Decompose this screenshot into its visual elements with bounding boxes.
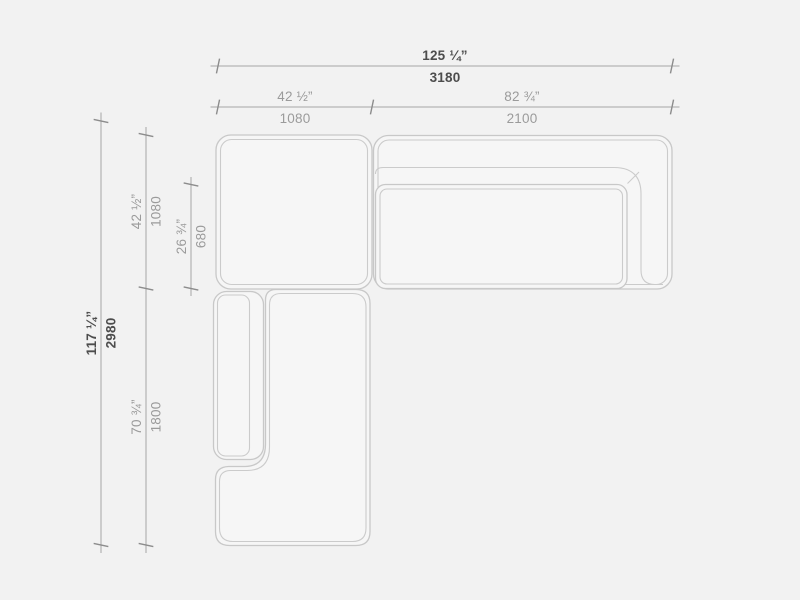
corner-module-width-inches-label: 42 ½” <box>277 89 313 104</box>
seat-depth-mm-label: 680 <box>194 225 209 248</box>
sofa-plan <box>214 135 673 546</box>
sofa-top-view-dimension-drawing: 125 ¼” 3180 42 ½” 1080 82 ¾” 2100 117 ¼”… <box>0 0 800 600</box>
chaise-module-depth-mm-label: 1800 <box>149 402 164 433</box>
seat-depth-inches-label: 26 ¾” <box>174 219 189 255</box>
corner-module-outline <box>216 135 372 289</box>
dimension-lines <box>94 59 680 553</box>
sofa-module-width-inches-label: 82 ¾” <box>504 89 540 104</box>
corner-module-depth-inches-label: 42 ½” <box>129 194 144 230</box>
dimension-drawing-page: 125 ¼” 3180 42 ½” 1080 82 ¾” 2100 117 ¼”… <box>0 0 800 600</box>
overall-depth-mm-label: 2980 <box>104 318 119 349</box>
corner-module-width-mm-label: 1080 <box>280 111 311 126</box>
chaise-module-depth-inches-label: 70 ¾” <box>129 399 144 435</box>
overall-depth-inches-label: 117 ¼” <box>84 311 99 356</box>
overall-width-mm-label: 3180 <box>430 70 461 85</box>
overall-width-inches-label: 125 ¼” <box>422 48 467 63</box>
corner-module-depth-mm-label: 1080 <box>149 196 164 227</box>
sofa-seat-outline <box>376 185 628 289</box>
sofa-module-width-mm-label: 2100 <box>507 111 538 126</box>
chaise-armrest-outline <box>214 292 264 460</box>
